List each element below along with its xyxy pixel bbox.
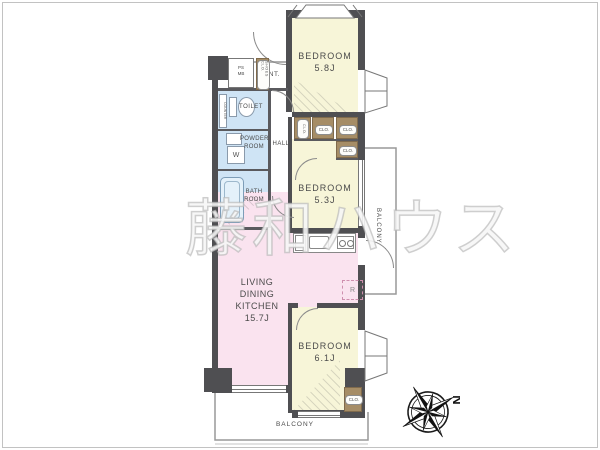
bedroom-mid-label: BEDROOM 5.3J <box>292 182 358 206</box>
room-name: ROOM <box>240 143 268 151</box>
refrigerator-space: R <box>342 280 363 300</box>
room-name: ROOM <box>240 196 268 204</box>
refrigerator-label: R <box>350 287 355 294</box>
partition <box>336 158 358 160</box>
powder-room-label: POWDER ROOM <box>240 135 268 151</box>
room-name: POWDER <box>240 135 268 143</box>
closet-label: CLO. <box>315 125 333 135</box>
balcony-right-label: BALCONY <box>370 198 382 254</box>
compass-rose: N <box>396 380 460 444</box>
room-area: 5.3J <box>292 194 358 206</box>
window <box>298 411 340 418</box>
closet-label: CLO. <box>339 146 357 156</box>
closet-label: CLO. <box>339 125 357 135</box>
window <box>358 160 365 226</box>
wall <box>345 368 365 388</box>
bay-window <box>365 331 387 381</box>
room-name: DINING KITCHEN <box>219 288 295 312</box>
room-area: 6.1J <box>292 352 358 364</box>
compass-north-label: N <box>450 395 460 404</box>
kitchen-stove <box>337 236 354 249</box>
wall <box>286 10 365 18</box>
room-area: 5.8J <box>292 62 358 74</box>
bedroom-top-label: BEDROOM 5.8J <box>292 50 358 74</box>
room-name: BEDROOM <box>292 182 358 194</box>
bathtub-inner <box>224 181 240 219</box>
shoes-closet-label: SHOES CLO. <box>257 60 270 90</box>
toilet-label: TOILET <box>235 103 267 111</box>
closet-label: CLO. <box>297 119 309 139</box>
bedroom-bottom-label: BEDROOM 6.1J <box>292 340 358 364</box>
room-area: 15.7J <box>219 312 295 324</box>
room-name: BATH <box>240 188 268 196</box>
meter-box-text: MB <box>228 71 254 77</box>
balcony-bottom-label: BALCONY <box>250 421 340 430</box>
room-name: BEDROOM <box>292 340 358 352</box>
ldk-label: LIVING DINING KITCHEN 15.7J <box>219 276 295 325</box>
window <box>232 385 286 393</box>
room-name: LIVING <box>219 276 295 288</box>
partition <box>268 91 271 228</box>
washing-machine-label: W <box>233 152 240 159</box>
bay-window <box>365 70 387 113</box>
wall <box>358 112 365 160</box>
closet-label: CLO. <box>345 395 363 405</box>
kitchen-cabinet <box>295 235 306 251</box>
kitchen-sink <box>309 236 329 249</box>
partition <box>212 227 268 230</box>
partition <box>218 129 268 131</box>
room-name: BEDROOM <box>292 50 358 62</box>
counter-label: COUNTER <box>219 97 227 125</box>
partition <box>218 169 268 171</box>
wall <box>358 18 365 70</box>
wall <box>212 80 218 393</box>
bath-room-label: BATH ROOM <box>240 188 268 204</box>
wall <box>208 56 228 80</box>
meter-box-label: PS MB <box>228 65 254 77</box>
stove-burner <box>347 240 354 247</box>
wall <box>317 303 365 308</box>
floor-plan: W R BEDROOM 5.8J BEDR <box>0 0 600 450</box>
hall-label: HALL <box>269 140 293 148</box>
stove-burner <box>339 240 346 247</box>
